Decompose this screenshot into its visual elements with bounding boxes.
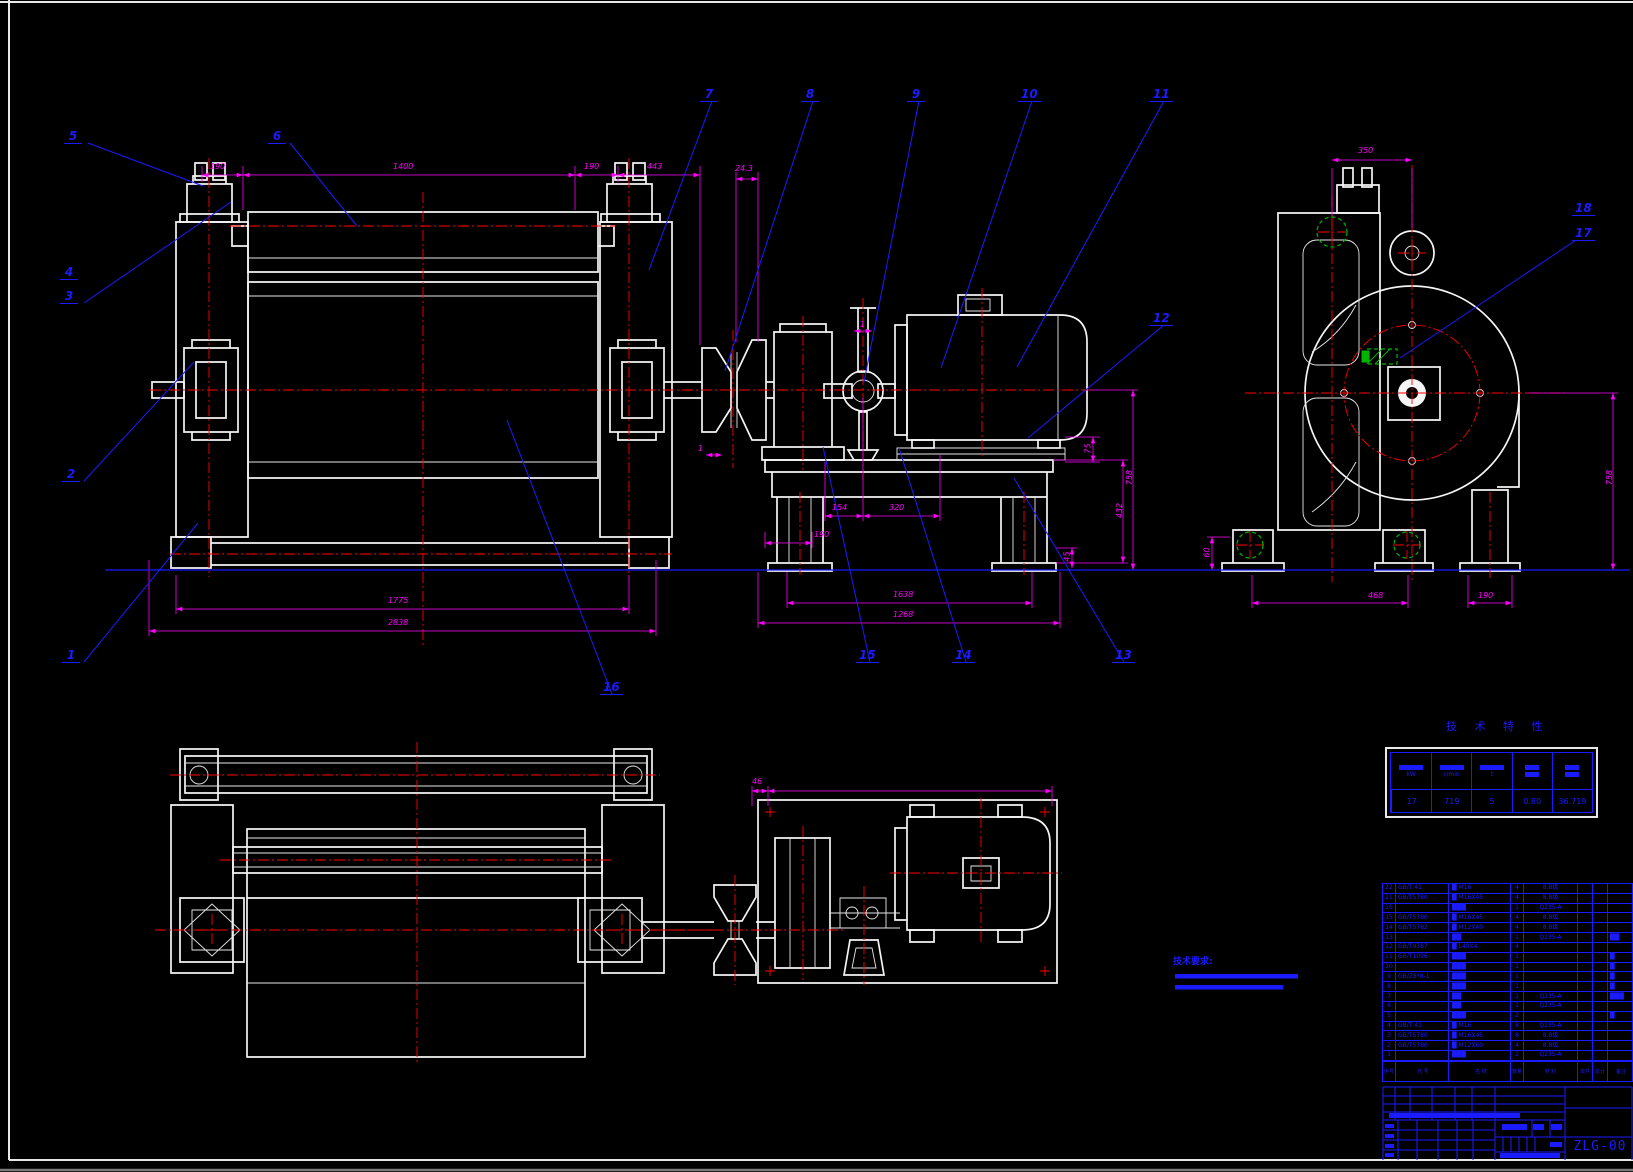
bom-item-qty: 8 <box>1510 1022 1523 1031</box>
dim-758-end: 758 <box>1605 470 1614 485</box>
bom-item-code <box>1395 904 1448 913</box>
bom-item-no: 22 <box>1383 884 1395 893</box>
bom-item-material: Q235-A <box>1523 904 1577 913</box>
bom-item-no: 14 <box>1383 923 1395 932</box>
bom-row: 1 ███ 2 Q235-A <box>1383 1050 1632 1060</box>
bom-header-name: 名 称 <box>1448 1062 1510 1081</box>
balloon-12: 12 <box>1150 312 1173 326</box>
bom-item-no: 10 <box>1383 963 1395 972</box>
key-detail <box>1362 349 1390 364</box>
dim-1638: 1638 <box>893 590 913 599</box>
balloon-15: 15 <box>856 649 879 663</box>
dim-24-3: 24.3 <box>735 164 753 173</box>
bom-item-qty: 2 <box>1510 1051 1523 1060</box>
balloon-6: 6 <box>268 130 286 144</box>
bom-row: 8 ███ 1 █ <box>1383 981 1632 991</box>
bom-item-code: GB/T5780 <box>1395 894 1448 903</box>
tech-requirement-line-1 <box>1175 974 1298 979</box>
bom-item-code: GB/T 41 <box>1395 1022 1448 1031</box>
bom-item-material <box>1523 953 1577 962</box>
bom-item-remark <box>1607 1002 1632 1011</box>
bom-item-unit-weight <box>1577 923 1592 932</box>
bom-item-qty: 1 <box>1510 904 1523 913</box>
bom-item-qty: 1 <box>1510 992 1523 1001</box>
bom-item-remark <box>1607 1031 1632 1040</box>
bom-item-total-weight <box>1592 904 1607 913</box>
tech-table: kW r/min t 17 719 5 0.80 36.719 <box>1385 747 1598 818</box>
bom-item-unit-weight <box>1577 1002 1592 1011</box>
bom-item-name: ██ <box>1448 992 1510 1001</box>
bom-row: 2 GB/T5780 █ M12X60 4 8.8级 <box>1383 1040 1632 1050</box>
dim-1268: 1268 <box>893 610 913 619</box>
dim-468: 468 <box>1368 591 1383 600</box>
bom-item-code: GB/T5780 <box>1395 913 1448 922</box>
tech-col-5 <box>1552 753 1592 789</box>
bom-item-code <box>1395 1051 1448 1060</box>
bom-item-code: GB/T9787 <box>1395 943 1448 952</box>
bom-item-unit-weight <box>1577 913 1592 922</box>
bom-item-unit-weight <box>1577 963 1592 972</box>
bom-item-code <box>1395 982 1448 991</box>
bom-row: 3 GB/T5780 █ M16X45 8 8.8级 <box>1383 1030 1632 1040</box>
bom-item-total-weight <box>1592 1012 1607 1021</box>
dim-60: 60 <box>1203 547 1212 557</box>
bom-item-name: █ M16X45 <box>1448 894 1510 903</box>
balloon-14: 14 <box>952 649 975 663</box>
balloon-10: 10 <box>1018 88 1041 102</box>
bom-item-unit-weight <box>1577 982 1592 991</box>
bom-item-total-weight <box>1592 1031 1607 1040</box>
dim-190-right: 190 <box>584 162 599 171</box>
bom-item-no: 2 <box>1383 1041 1395 1050</box>
bom-item-unit-weight <box>1577 1031 1592 1040</box>
balloon-7: 7 <box>700 88 718 102</box>
bom-item-material <box>1523 943 1577 952</box>
bom-item-remark: █ <box>1607 972 1632 981</box>
balloon-16: 16 <box>600 681 623 695</box>
tech-value-5: 36.719 <box>1552 789 1592 812</box>
dim-75: 75 <box>1084 443 1093 453</box>
dim-154: 154 <box>832 503 847 512</box>
bom-row: 15 GB/T5780 █ M16X45 4 8.8级 <box>1383 912 1632 922</box>
bom-item-no: 9 <box>1383 972 1395 981</box>
bom-item-total-weight <box>1592 963 1607 972</box>
bom-item-total-weight <box>1592 943 1607 952</box>
bom-item-name: █ M12X60 <box>1448 1041 1510 1050</box>
bom-item-total-weight <box>1592 1022 1607 1031</box>
bom-item-no: 3 <box>1383 1031 1395 1040</box>
bom-item-material: 8.8级 <box>1523 884 1577 893</box>
bom-item-qty: 4 <box>1510 923 1523 932</box>
bom-item-total-weight <box>1592 894 1607 903</box>
bom-item-remark: █ <box>1607 1012 1632 1021</box>
bom-row: 6 ██ 1 Q235-A <box>1383 1001 1632 1011</box>
bom-item-qty: 1 <box>1510 972 1523 981</box>
bom-item-remark <box>1607 943 1632 952</box>
bom-item-name: █ M16X45 <box>1448 1031 1510 1040</box>
tech-col-power: kW <box>1391 753 1431 789</box>
bom-item-code <box>1395 933 1448 942</box>
bom-item-total-weight <box>1592 913 1607 922</box>
bom-header-no: 序号 <box>1383 1062 1395 1081</box>
bom-item-remark: █ <box>1607 963 1632 972</box>
bom-item-total-weight <box>1592 972 1607 981</box>
machine-detail-lines <box>184 240 1484 983</box>
tech-value-capacity: 5 <box>1471 789 1511 812</box>
bom-item-name: █ L40X4 <box>1448 943 1510 952</box>
bom-item-qty: 4 <box>1510 943 1523 952</box>
dim-350: 350 <box>1358 146 1373 155</box>
bom-item-remark <box>1607 884 1632 893</box>
bom-item-material <box>1523 982 1577 991</box>
bom-header: 序号 代 号 名 称 数量 材 料 单件 总计 备注 <box>1382 1061 1633 1082</box>
dim-758-stand: 758 <box>1125 470 1134 485</box>
bom-item-qty: 1 <box>1510 933 1523 942</box>
bom-row: 14 GB/T5782 █ M12X40 4 8.8级 <box>1383 922 1632 932</box>
bom-row: 12 GB/T9787 █ L40X4 4 <box>1383 942 1632 952</box>
bom-item-name: ███ <box>1448 904 1510 913</box>
bom-item-qty: 4 <box>1510 913 1523 922</box>
bom-item-name: █ M12X40 <box>1448 923 1510 932</box>
balloon-3: 3 <box>60 290 78 304</box>
bom-item-name: ███ <box>1448 953 1510 962</box>
bom-item-no: 15 <box>1383 913 1395 922</box>
bom-item-code <box>1395 1002 1448 1011</box>
bom-row: 22 GB/T 41 █ M16 4 8.8级 <box>1383 884 1632 893</box>
bom-item-no: 16 <box>1383 904 1395 913</box>
bom-item-qty: 4 <box>1510 894 1523 903</box>
bom-item-qty: 4 <box>1510 884 1523 893</box>
bom-item-no: 11 <box>1383 953 1395 962</box>
machine-outlines <box>152 163 1520 1057</box>
bom-item-name: ██ <box>1448 933 1510 942</box>
bom-item-code: GB/T5780 <box>1395 1041 1448 1050</box>
bom-item-material: Q235-A <box>1523 992 1577 1001</box>
bom-item-unit-weight <box>1577 992 1592 1001</box>
bom-item-qty: 8 <box>1510 1031 1523 1040</box>
dim-46: 46 <box>752 777 762 786</box>
bom-item-code <box>1395 963 1448 972</box>
tech-requirements-title: 技术要求: <box>1173 954 1213 967</box>
bom-item-unit-weight <box>1577 972 1592 981</box>
bom-row: 4 GB/T 41 █ M16 8 Q235-A <box>1383 1021 1632 1031</box>
bom-item-name: █ M16 <box>1448 1022 1510 1031</box>
bom-header-total: 总计 <box>1592 1062 1607 1081</box>
bom-item-unit-weight <box>1577 904 1592 913</box>
bom-item-material: 8.8级 <box>1523 894 1577 903</box>
bom-item-code: GB/T 41 <box>1395 884 1448 893</box>
bom-item-no: 5 <box>1383 1012 1395 1021</box>
bom-item-name: ███ <box>1448 982 1510 991</box>
bom-item-name: ███ <box>1448 963 1510 972</box>
bom-item-material <box>1523 972 1577 981</box>
bom-item-total-weight <box>1592 1002 1607 1011</box>
bom-item-no: 12 <box>1383 943 1395 952</box>
bom-item-total-weight <box>1592 923 1607 932</box>
bom-item-unit-weight <box>1577 1041 1592 1050</box>
bom-item-no: 1 <box>1383 1051 1395 1060</box>
tech-value-power: 17 <box>1391 789 1431 812</box>
bom-item-total-weight <box>1592 982 1607 991</box>
bom-item-unit-weight <box>1577 943 1592 952</box>
bom-item-code: GB/T1096 <box>1395 953 1448 962</box>
bom-item-qty: 1 <box>1510 982 1523 991</box>
bom-header-qty: 数量 <box>1510 1062 1523 1081</box>
balloon-11: 11 <box>1150 88 1173 102</box>
bom-item-total-weight <box>1592 1051 1607 1060</box>
drawing-number: ZLG-00 <box>1570 1139 1630 1154</box>
bom-item-code: GB/T5780 <box>1395 1031 1448 1040</box>
balloon-9: 9 <box>907 88 925 102</box>
cad-sheet: 1 2 3 4 5 6 7 8 9 10 11 12 13 14 15 16 1… <box>0 0 1633 1172</box>
bom-item-material: Q235-A <box>1523 1002 1577 1011</box>
tech-value-4: 0.80 <box>1512 789 1552 812</box>
tech-requirement-line-2 <box>1175 985 1283 990</box>
bom-item-no: 6 <box>1383 1002 1395 1011</box>
balloon-8: 8 <box>801 88 819 102</box>
bom-item-remark <box>1607 913 1632 922</box>
bom-item-unit-weight <box>1577 933 1592 942</box>
dim-443: 443 <box>647 162 662 171</box>
bom-item-remark <box>1607 1022 1632 1031</box>
bom-item-no: 4 <box>1383 1022 1395 1031</box>
bom-item-no: 8 <box>1383 982 1395 991</box>
dim-432: 432 <box>1115 503 1124 518</box>
tech-col-4 <box>1512 753 1552 789</box>
tech-value-speed: 719 <box>1431 789 1471 812</box>
tech-col-capacity: t <box>1471 753 1511 789</box>
bom-item-unit-weight <box>1577 1051 1592 1060</box>
bom-item-unit-weight <box>1577 894 1592 903</box>
bom-item-remark <box>1607 923 1632 932</box>
bom-item-material: 8.8级 <box>1523 1041 1577 1050</box>
bom-item-unit-weight <box>1577 884 1592 893</box>
bom-item-code <box>1395 1012 1448 1021</box>
bom-item-total-weight <box>1592 1041 1607 1050</box>
balloon-5: 5 <box>64 130 82 144</box>
bom-item-remark <box>1607 1051 1632 1060</box>
bom-header-material: 材 料 <box>1523 1062 1577 1081</box>
bom-item-material: Q235-A <box>1523 933 1577 942</box>
bom-row: 10 ███ 1 █ <box>1383 962 1632 972</box>
dim-1-jack: 1 <box>860 320 865 329</box>
bom-table: 22 GB/T 41 █ M16 4 8.8级 21 GB/T5780 █ M1… <box>1382 883 1633 1061</box>
bom-item-material: Q235-A <box>1523 1022 1577 1031</box>
bom-item-remark <box>1607 894 1632 903</box>
bom-item-qty: 1 <box>1510 953 1523 962</box>
bom-header-code: 代 号 <box>1395 1062 1448 1081</box>
bom-item-remark <box>1607 1041 1632 1050</box>
bom-item-remark: █ <box>1607 982 1632 991</box>
bom-row: 11 GB/T1096 ███ 1 █ <box>1383 952 1632 962</box>
bom-item-qty: 2 <box>1510 1012 1523 1021</box>
bom-item-code <box>1395 992 1448 1001</box>
bom-item-name: ███ <box>1448 1051 1510 1060</box>
bom-item-name: ███ <box>1448 1012 1510 1021</box>
dim-1775: 1775 <box>388 596 408 605</box>
bom-item-material <box>1523 963 1577 972</box>
bom-item-code: GB/T5782 <box>1395 923 1448 932</box>
bom-item-material: 8.8级 <box>1523 913 1577 922</box>
bom-row: 9 GB/Z8*8-1 ███ 1 █ <box>1383 971 1632 981</box>
bom-item-unit-weight <box>1577 1012 1592 1021</box>
balloon-18: 18 <box>1572 202 1595 216</box>
bom-item-qty: 1 <box>1510 1002 1523 1011</box>
tech-table-title: 技 术 特 性 <box>1446 718 1550 734</box>
tech-col-speed: r/min <box>1431 753 1471 789</box>
dim-190-left: 190 <box>210 162 225 171</box>
bom-item-name: █ M16X45 <box>1448 913 1510 922</box>
bolt-hole-circles <box>1237 217 1420 558</box>
balloon-13: 13 <box>1112 649 1135 663</box>
balloon-2: 2 <box>62 468 80 482</box>
bom-item-qty: 1 <box>1510 963 1523 972</box>
bom-row: 7 ██ 1 Q235-A ███ <box>1383 991 1632 1001</box>
bom-item-no: 21 <box>1383 894 1395 903</box>
bom-item-total-weight <box>1592 884 1607 893</box>
balloon-4: 4 <box>60 266 78 280</box>
bom-item-remark: ██ <box>1607 933 1632 942</box>
bom-item-no: 13 <box>1383 933 1395 942</box>
bom-row: 21 GB/T5780 █ M16X45 4 8.8级 <box>1383 893 1632 903</box>
bom-item-remark <box>1607 904 1632 913</box>
bom-item-name: █ M16 <box>1448 884 1510 893</box>
bom-item-no: 7 <box>1383 992 1395 1001</box>
bom-item-total-weight <box>1592 953 1607 962</box>
bom-header-remark: 备注 <box>1607 1062 1632 1081</box>
dim-1-pulley: 1 <box>698 444 703 453</box>
bom-item-unit-weight <box>1577 1022 1592 1031</box>
bom-row: 16 ███ 1 Q235-A <box>1383 903 1632 913</box>
bom-item-code: GB/Z8*8-1 <box>1395 972 1448 981</box>
bom-item-name: ██ <box>1448 1002 1510 1011</box>
dim-1400: 1400 <box>393 162 413 171</box>
bom-item-material: 8.8级 <box>1523 923 1577 932</box>
bom-item-remark: ███ <box>1607 992 1632 1001</box>
bom-item-material <box>1523 1012 1577 1021</box>
bom-row: 5 ███ 2 █ <box>1383 1011 1632 1021</box>
bom-item-name: ███ <box>1448 972 1510 981</box>
bom-item-remark: █ <box>1607 953 1632 962</box>
dim-45: 45 <box>1063 551 1072 561</box>
bom-item-unit-weight <box>1577 953 1592 962</box>
dimension-lines <box>149 160 1613 791</box>
bom-row: 13 ██ 1 Q235-A ██ <box>1383 932 1632 942</box>
dim-2838: 2838 <box>388 618 408 627</box>
bom-item-total-weight <box>1592 992 1607 1001</box>
balloon-17: 17 <box>1572 227 1595 241</box>
dim-190-leg: 190 <box>814 530 829 539</box>
bom-item-total-weight <box>1592 933 1607 942</box>
bom-item-qty: 4 <box>1510 1041 1523 1050</box>
bom-header-unit: 单件 <box>1577 1062 1592 1081</box>
bom-item-material: Q235-A <box>1523 1051 1577 1060</box>
dimension-extension-lines <box>149 166 1618 806</box>
bom-item-material: 8.8级 <box>1523 1031 1577 1040</box>
dim-190-foot: 190 <box>1478 591 1493 600</box>
balloon-1: 1 <box>62 649 80 663</box>
dim-320: 320 <box>889 503 904 512</box>
